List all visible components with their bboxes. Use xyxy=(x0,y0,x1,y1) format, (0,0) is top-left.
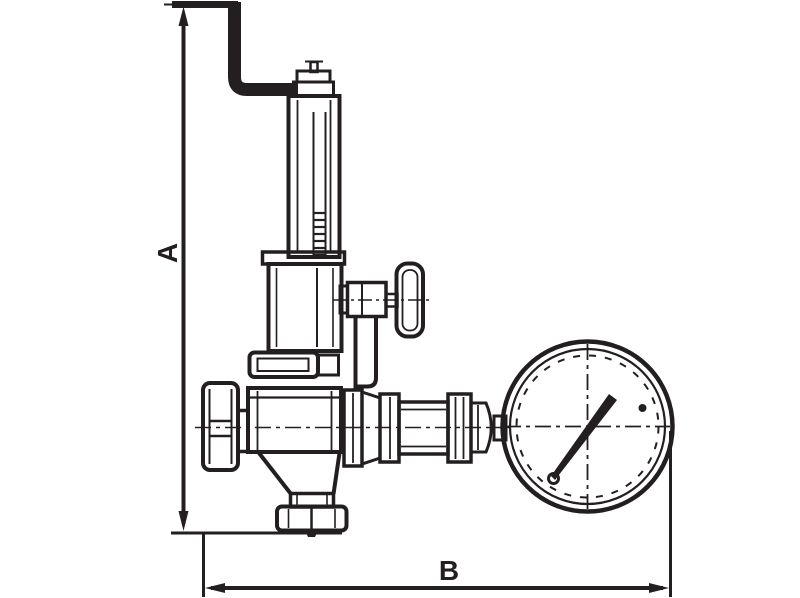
dimension-b-label: B xyxy=(439,555,459,586)
adjusting-lever xyxy=(172,2,298,90)
dimension-a-arrow-up-icon xyxy=(179,7,189,27)
cap-nut xyxy=(294,82,334,96)
pressure-gauge xyxy=(503,342,673,512)
side-handle xyxy=(333,264,431,389)
dimension-b-arrow-left-icon xyxy=(205,583,225,593)
outlet-tip xyxy=(305,531,318,538)
dimension-a-label: A xyxy=(152,243,183,263)
dimension-a-arrow-down-icon xyxy=(179,511,189,531)
dimension-b: B xyxy=(204,431,671,597)
housing-bell xyxy=(269,264,342,351)
spring-housing xyxy=(250,96,345,377)
gauge-needle xyxy=(551,394,617,480)
inlet-cap xyxy=(203,383,238,470)
valve-technical-drawing: A B xyxy=(0,0,800,598)
dimension-b-arrow-right-icon xyxy=(649,583,669,593)
drawing-canvas: A B xyxy=(0,0,800,598)
dial-mark xyxy=(639,404,647,412)
adjusting-screw xyxy=(294,62,334,97)
threaded-stem-hatching xyxy=(313,213,326,255)
outlet xyxy=(259,453,347,537)
